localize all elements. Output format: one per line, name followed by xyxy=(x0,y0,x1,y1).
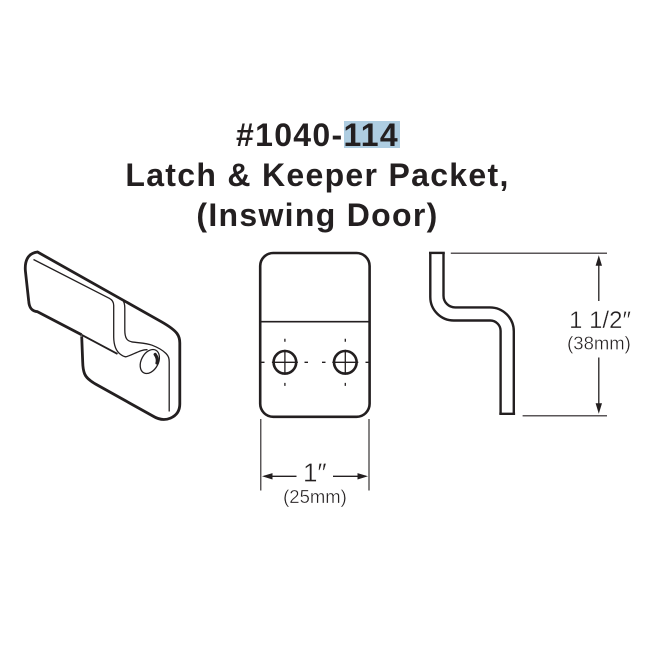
svg-text:1 1/2″: 1 1/2″ xyxy=(569,307,631,334)
svg-text:(38mm): (38mm) xyxy=(567,333,631,354)
svg-text:1″: 1″ xyxy=(303,458,327,488)
svg-text:(25mm): (25mm) xyxy=(283,486,347,507)
